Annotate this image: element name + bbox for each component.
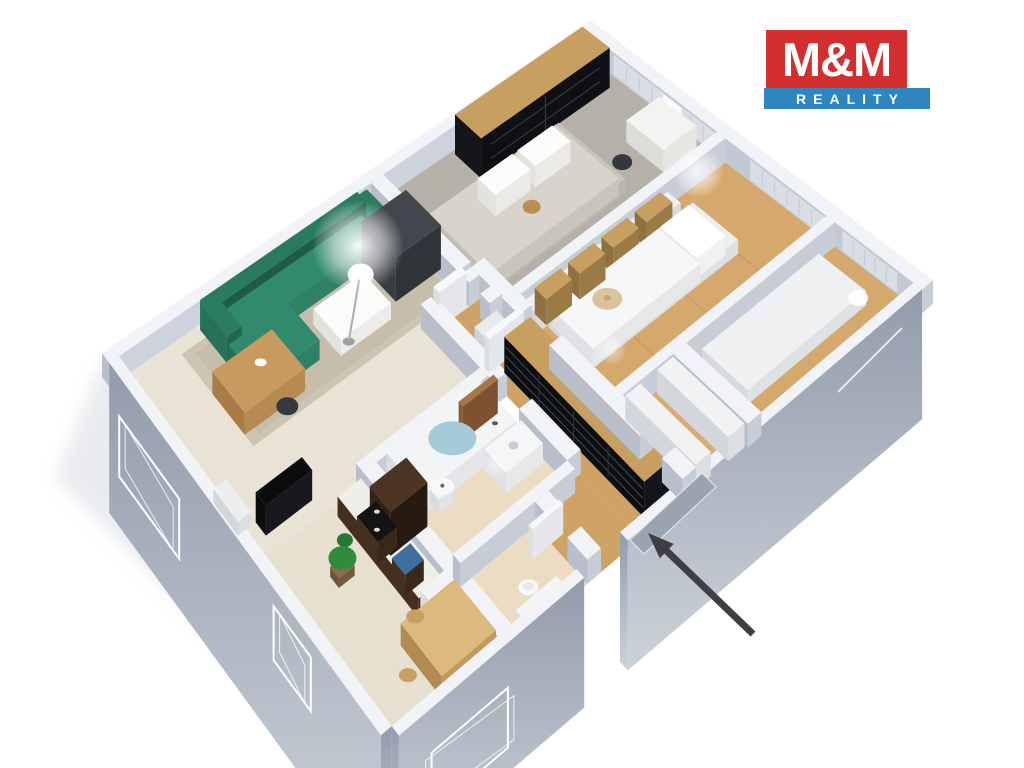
floorplan-3d-render [0,0,1024,768]
wall-exterior-east-a-face [620,532,628,670]
plant-foliage [337,533,353,547]
bedroom1-tray [523,200,541,214]
plant-foliage [328,546,356,570]
desk-chair [276,397,298,415]
bath-light-glow [482,452,508,478]
lamp-glow [312,200,404,292]
dining-chair [406,609,424,623]
wall-light [848,290,868,306]
logo-subtitle: REALITY [789,91,905,107]
bedroom1-chair [612,154,632,170]
bathtub-faucet [492,421,498,425]
dining-chair [399,668,417,682]
bedroom2-pouf-button [603,295,611,301]
washer-door [509,441,519,449]
floorplan-page: M&M REALITY [0,0,1024,768]
door-wc-face [529,525,533,560]
cooktop-burner [374,510,380,514]
desk-paper [255,358,267,366]
cooktop-burner [374,528,380,532]
mm-reality-logo-red-box: M&M [766,30,907,88]
sink-drain [440,484,444,488]
bedroom2-light-glow [672,146,724,198]
toilet-seat [522,582,534,590]
bathtub-water [428,421,476,455]
hall-light-glow [597,335,627,365]
logo-title: M&M [782,32,891,87]
door-bedroom2-face [485,334,490,373]
mm-reality-logo-blue-box: REALITY [764,88,930,109]
